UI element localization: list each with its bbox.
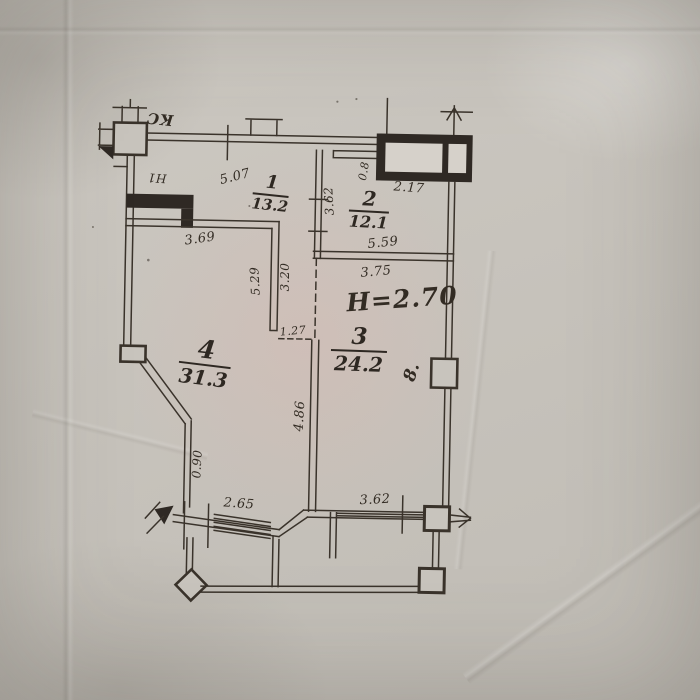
window-lines-right [337,513,423,517]
balcony-column [419,568,444,592]
black-wall-segment [126,194,194,228]
dim-wall-upper: 5.29 [247,266,262,295]
room-number: 2 [349,188,390,210]
top-right-arrow-mark [441,106,473,136]
bottom-walls [145,491,471,560]
balcony [175,526,445,606]
diamond-column [176,569,207,600]
dim-window-width: 2.17 [393,179,425,196]
room-4-label: 4 31.3 [176,334,234,392]
room-number: 1 [253,172,291,194]
room-1-label: 1 13.2 [251,172,292,215]
room-2-label: 2 12.1 [348,188,390,233]
dim-partition-height: 4.86 [292,400,309,432]
vent-mark [246,119,282,136]
room-area: 12.1 [348,214,389,233]
room-divider-wall [309,340,319,511]
dim-room3-width: 3.75 [360,263,392,281]
dim-room2-width: 5.59 [367,234,399,252]
room-number: 3 [331,324,388,349]
dim-bottom-right: 3.62 [359,492,391,509]
annotation-corner-mark: КС [146,109,174,130]
arrow-mark-right [449,509,470,527]
dashed-partition [315,258,317,338]
annotation-wall-mark: Н1 [147,170,167,185]
dim-wall-lower: 3.20 [278,263,292,292]
right-wall [429,182,461,507]
dim-room2-height: 3.62 [321,186,336,215]
room-area: 24.2 [330,353,387,376]
dim-left-offset: 0.90 [189,449,204,478]
room-number: 4 [179,334,234,365]
floor-plan-photo: 5.07 2.17 0.8 5.59 3.62 3.75 3.69 5.29 3… [0,0,700,700]
dim-opening: 1.27 [279,323,307,338]
window-block [376,133,473,182]
top-wall [120,94,387,174]
dim-bottom-left: 2.65 [223,495,255,512]
room-area: 13.2 [251,196,289,215]
top-left-corner-column [98,99,147,160]
room-3-label: 3 24.2 [330,324,388,376]
